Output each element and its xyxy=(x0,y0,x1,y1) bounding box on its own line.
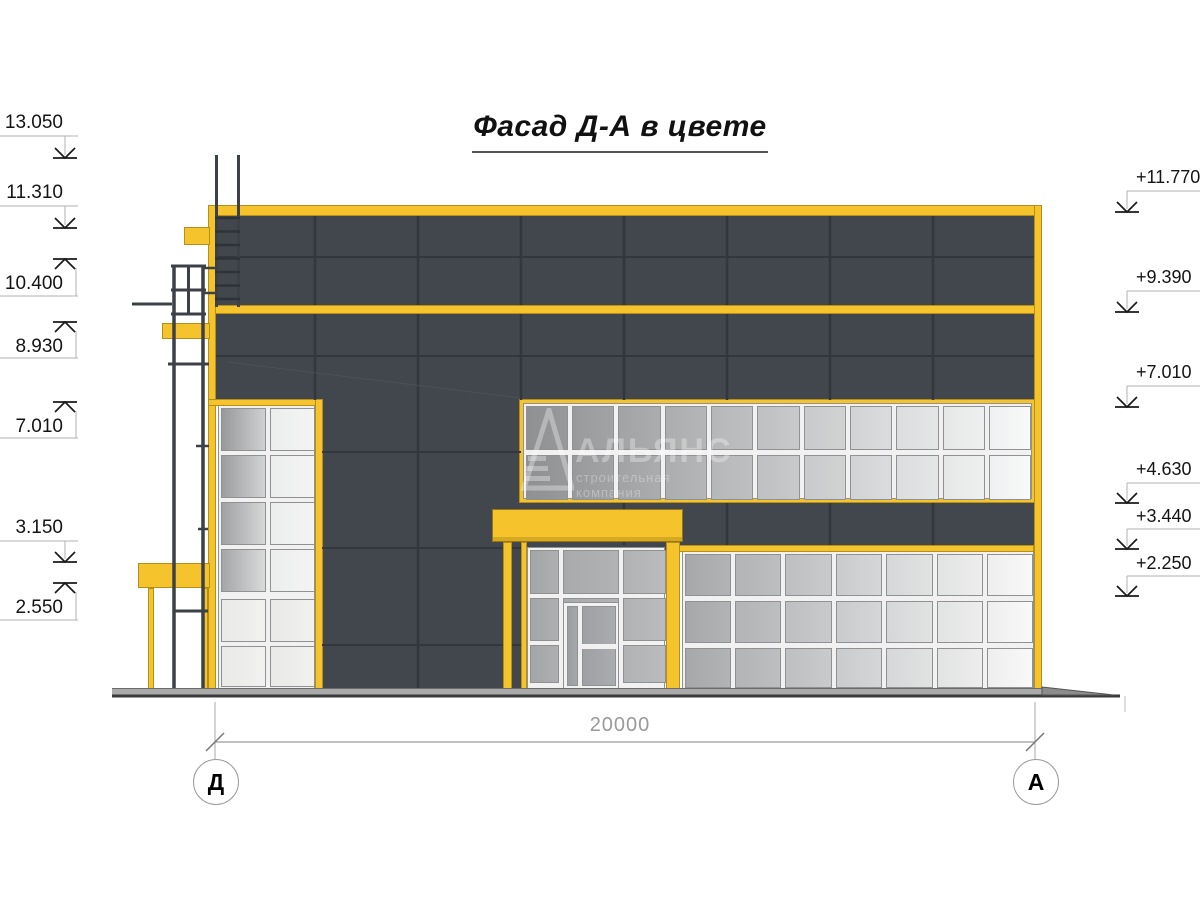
axis-bubble-a: А xyxy=(1013,759,1059,805)
elevation-arrow-up-icon xyxy=(55,583,75,593)
elevation-mark-label: +2.250 xyxy=(1136,553,1192,574)
elevation-mark-label: 13.050 xyxy=(0,112,63,134)
elevation-mark-label: 3.150 xyxy=(0,517,63,539)
elevation-mark-label: +4.630 xyxy=(1136,459,1192,480)
facade-drawing-canvas: Фасад Д-А в цвете АЛЬЯНС строительная ко… xyxy=(0,0,1200,900)
elevation-mark-label: 2.550 xyxy=(0,597,63,619)
axis-bubble-d: Д xyxy=(193,759,239,805)
elevation-mark-label: +7.010 xyxy=(1136,362,1192,383)
ground-ramp xyxy=(1042,687,1114,695)
axis-letter: А xyxy=(1028,769,1045,796)
elevation-mark-label: 11.310 xyxy=(0,182,63,204)
dimension-value: 20000 xyxy=(520,714,720,737)
elevation-mark-label: 7.010 xyxy=(0,416,63,438)
elevation-mark-label: 10.400 xyxy=(0,273,63,295)
elevation-mark-label: +9.390 xyxy=(1136,267,1192,288)
elevation-mark-label: +3.440 xyxy=(1136,506,1192,527)
axis-letter: Д xyxy=(208,769,224,796)
elevation-arrow-up-icon xyxy=(55,402,75,412)
elevation-arrow-up-icon xyxy=(55,259,75,269)
elevation-mark-label: +11.770 xyxy=(1136,167,1200,188)
elevation-mark-label: 8.930 xyxy=(0,336,63,358)
elevation-arrow-up-icon xyxy=(55,322,75,332)
